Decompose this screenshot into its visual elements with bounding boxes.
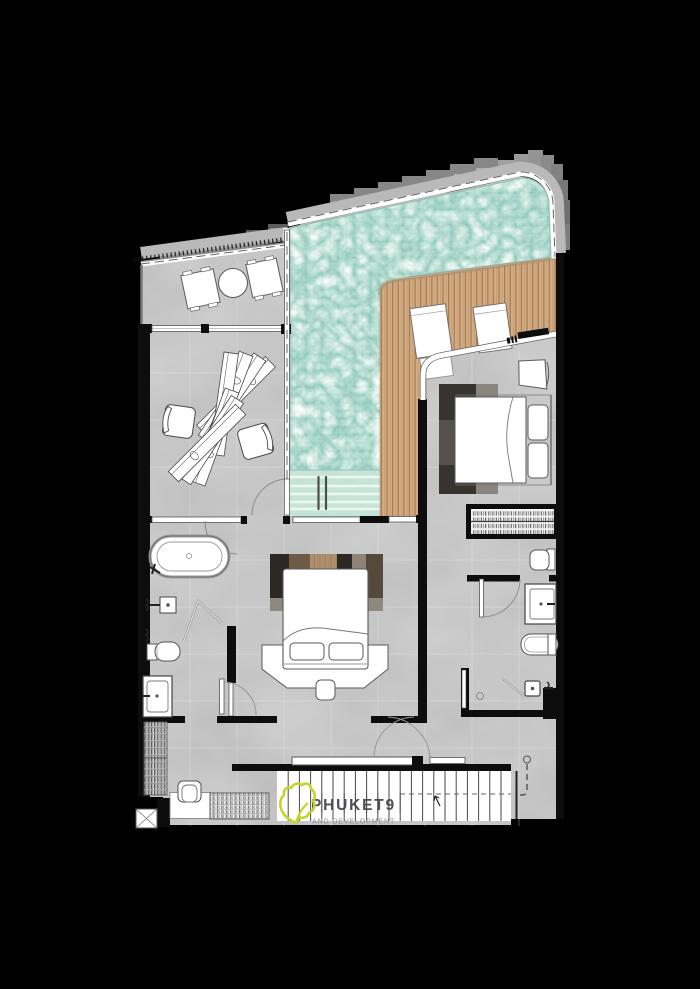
svg-text:PHUKET9: PHUKET9	[311, 797, 396, 814]
svg-text:AND DEVELOPMENT: AND DEVELOPMENT	[312, 819, 395, 826]
